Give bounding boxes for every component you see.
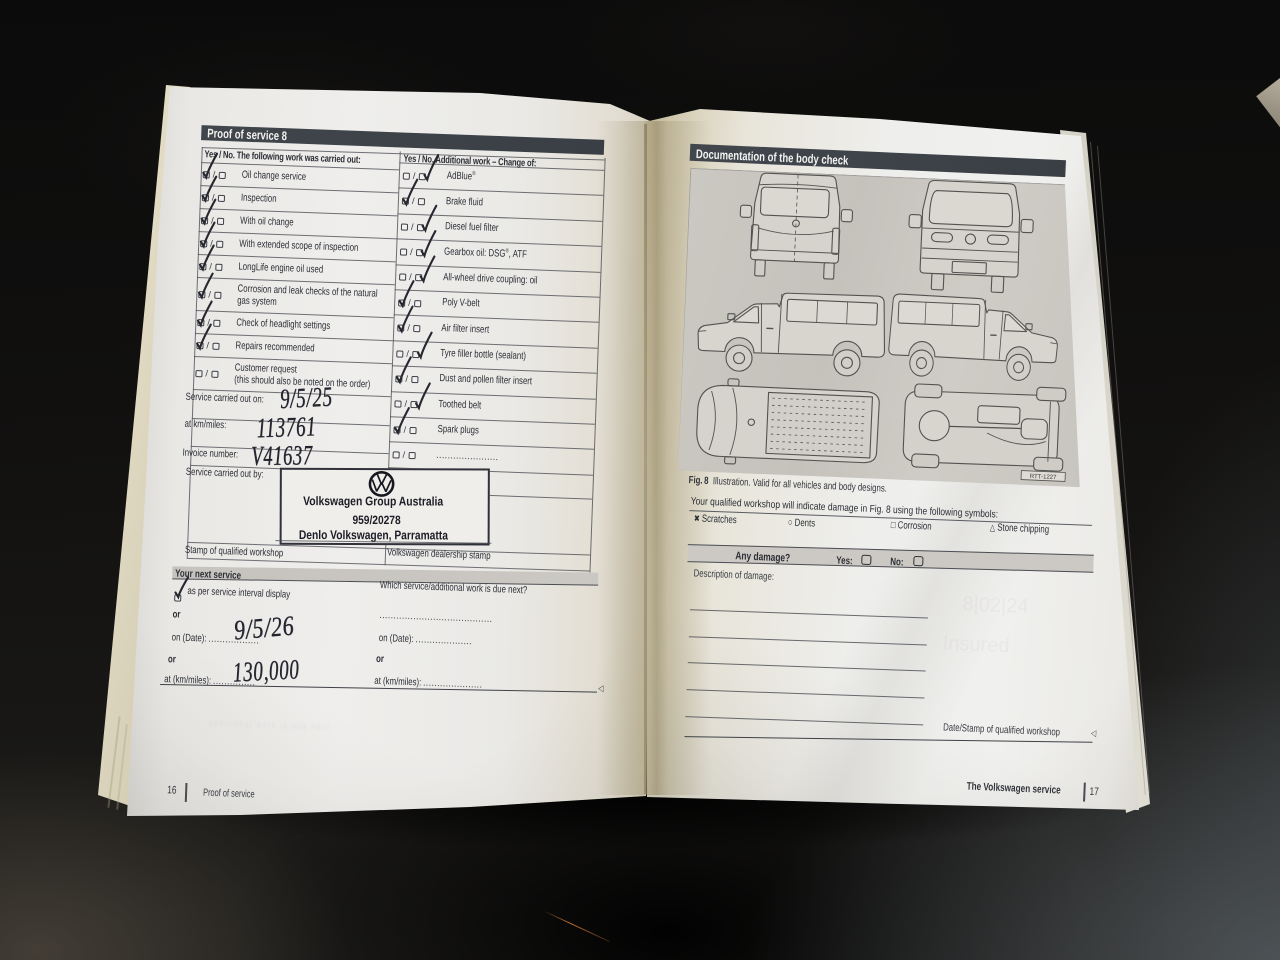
svg-text:RTT-1227: RTT-1227 xyxy=(1030,474,1057,481)
